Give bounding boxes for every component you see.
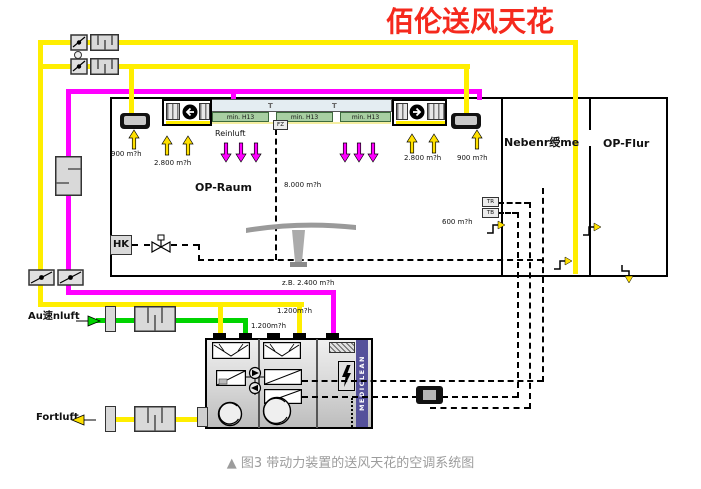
wall-opraum-neben: [501, 97, 503, 277]
duct-y-left-riser: [38, 40, 43, 307]
duct-y-top1: [38, 40, 578, 45]
tr-sensor-box: TR: [482, 197, 499, 207]
silencer-icon: [134, 406, 176, 432]
mediclean-label: MEDICLEAN: [358, 355, 366, 411]
fan-icon: [409, 104, 425, 120]
supply-arrow-icon: [429, 134, 439, 153]
control-device: [416, 386, 443, 404]
control-line: [302, 380, 543, 382]
flow-recirc: z.B. 2.400 m?h: [282, 280, 334, 287]
room-label-opraum: OP-Raum: [195, 182, 252, 193]
air-transfer-icon: [620, 264, 634, 284]
tr-label: TR: [487, 199, 494, 205]
flow-2800-right: 2.800 m?h: [404, 155, 441, 162]
aussenluft-label: Au速nluft: [28, 312, 80, 322]
laminar-arrow-icon: [221, 143, 231, 162]
laminar-arrow-icon: [354, 143, 364, 162]
air-transfer-icon: [553, 257, 573, 271]
duct-tag: [326, 333, 339, 339]
duct-y-outletL-drop: [129, 69, 134, 115]
bag-filter-icon: [263, 342, 301, 359]
valve-icon: [150, 234, 172, 256]
room-label-nebenraeume: Nebenr绶me: [504, 137, 579, 148]
operating-table: [238, 216, 362, 270]
duct-y-neben-riser: [573, 40, 578, 274]
supply-arrow-icon: [129, 130, 139, 149]
hk-box: HK: [110, 235, 132, 255]
flow-900-right: 900 m?h: [457, 155, 488, 162]
control-line: [529, 202, 531, 409]
duct-recirc-stub2: [477, 94, 482, 100]
control-device-face: [423, 390, 436, 400]
fan-icon: [182, 104, 198, 120]
laminar-arrow-icon: [340, 143, 350, 162]
exhaust-arrow-icon: [72, 414, 96, 426]
flow-600: 600 m?h: [442, 219, 473, 226]
louver-icon: [105, 406, 116, 432]
flow-branch-fresh: 1.200m?h: [251, 323, 286, 330]
laminar-arrow-icon: [368, 143, 378, 162]
fan-icon: [217, 401, 243, 427]
duct-recirc-ahu-drop: [331, 290, 336, 339]
pump-pair-icon: [245, 365, 265, 397]
silencer-icon: [134, 306, 176, 332]
silencer-icon: [199, 103, 210, 120]
ceiling-line: [212, 122, 391, 124]
control-line: [302, 396, 518, 398]
supply-arrow-icon: [183, 136, 193, 155]
t-sensor-2: T: [332, 103, 337, 110]
supply-outlet-left: [120, 113, 150, 129]
supply-outlet-right: [451, 113, 481, 129]
silencer-icon: [166, 103, 180, 120]
filter-label-3: min. H13: [352, 114, 379, 121]
ceiling-fan-unit-right: [392, 99, 447, 126]
flow-900-left: 900 m?h: [111, 151, 142, 158]
air-transfer-icon: [486, 221, 506, 235]
fresh-air-arrow-icon: [76, 315, 100, 327]
fz-sensor-box: FZ: [273, 120, 288, 130]
page-title: 佰伦送风天花: [386, 0, 554, 40]
flow-branch-exhaust: 1.200m?h: [277, 308, 312, 315]
tb-sensor-box: TB: [482, 208, 499, 218]
damper-icon: [70, 34, 88, 51]
control-line: [430, 407, 530, 409]
flow-8000: 8.000 m?h: [284, 182, 321, 189]
coil-icon: [264, 369, 302, 385]
figure-caption: ▲ 图3 带动力装置的送风天花的空调系统图: [0, 452, 701, 471]
hk-label: HK: [113, 239, 129, 250]
control-line: [132, 244, 150, 246]
t-sensor-1: T: [268, 103, 273, 110]
control-line: [517, 212, 519, 398]
sensor-dotted-line: [351, 398, 353, 427]
control-line: [171, 244, 199, 246]
tb-label: TB: [487, 210, 494, 216]
filter-label-1: min. H13: [227, 114, 254, 121]
silencer-icon: [90, 58, 119, 75]
ceiling-plenum: [210, 99, 392, 112]
supply-arrow-icon: [407, 134, 417, 153]
control-line: [542, 188, 544, 382]
filter-label-2: min. H13: [291, 114, 318, 121]
duct-tag: [267, 333, 280, 339]
fine-filter-icon: [329, 342, 355, 353]
control-line: [498, 212, 518, 214]
ceiling-fan-unit-left: [162, 99, 212, 126]
duct-y-outletR-drop: [464, 69, 469, 115]
unit-strip: [396, 121, 445, 124]
hepa-filter-3: min. H13: [340, 112, 391, 122]
fz-label: FZ: [277, 122, 284, 128]
ahu-divider-2: [316, 339, 318, 428]
fan-icon: [262, 396, 292, 426]
hvac-diagram: 佰伦送风天花 ▲ 图3 带动力装置的送风天花的空调系统图 MEDICLEAN m…: [0, 0, 701, 489]
wall-neben-flur-b: [589, 146, 591, 277]
silencer-icon: [396, 103, 408, 120]
ahu-inlet-louver: [197, 407, 208, 427]
coil-icon: [216, 370, 246, 386]
bag-filter-icon: [212, 342, 250, 359]
duct-tag: [213, 333, 226, 339]
duct-tag: [239, 333, 252, 339]
damper-icon: [28, 269, 55, 286]
room-label-opflur: OP-Flur: [603, 138, 649, 149]
laminar-arrow-icon: [236, 143, 246, 162]
control-line: [498, 202, 530, 204]
louver-icon: [105, 306, 116, 332]
duct-recirc-bottom: [66, 290, 336, 295]
unit-strip: [166, 121, 210, 124]
flow-2800-left: 2.800 m?h: [154, 160, 191, 167]
hepa-filter-1: min. H13: [212, 112, 269, 122]
supply-arrow-icon: [472, 130, 482, 149]
mediclean-strip: MEDICLEAN: [356, 340, 368, 427]
supply-arrow-icon: [162, 136, 172, 155]
lightning-icon: [341, 365, 352, 387]
duct-tag: [293, 333, 306, 339]
laminar-arrow-icon: [251, 143, 261, 162]
reinluft-label: Reinluft: [215, 130, 246, 138]
silencer-icon: [55, 156, 82, 196]
damper-icon: [57, 269, 84, 286]
air-transfer-icon: [582, 223, 602, 237]
silencer-icon: [427, 103, 445, 120]
electric-heater: [338, 361, 355, 391]
wall-neben-flur-a: [589, 97, 591, 130]
damper-icon: [70, 58, 88, 75]
silencer-icon: [90, 34, 119, 51]
